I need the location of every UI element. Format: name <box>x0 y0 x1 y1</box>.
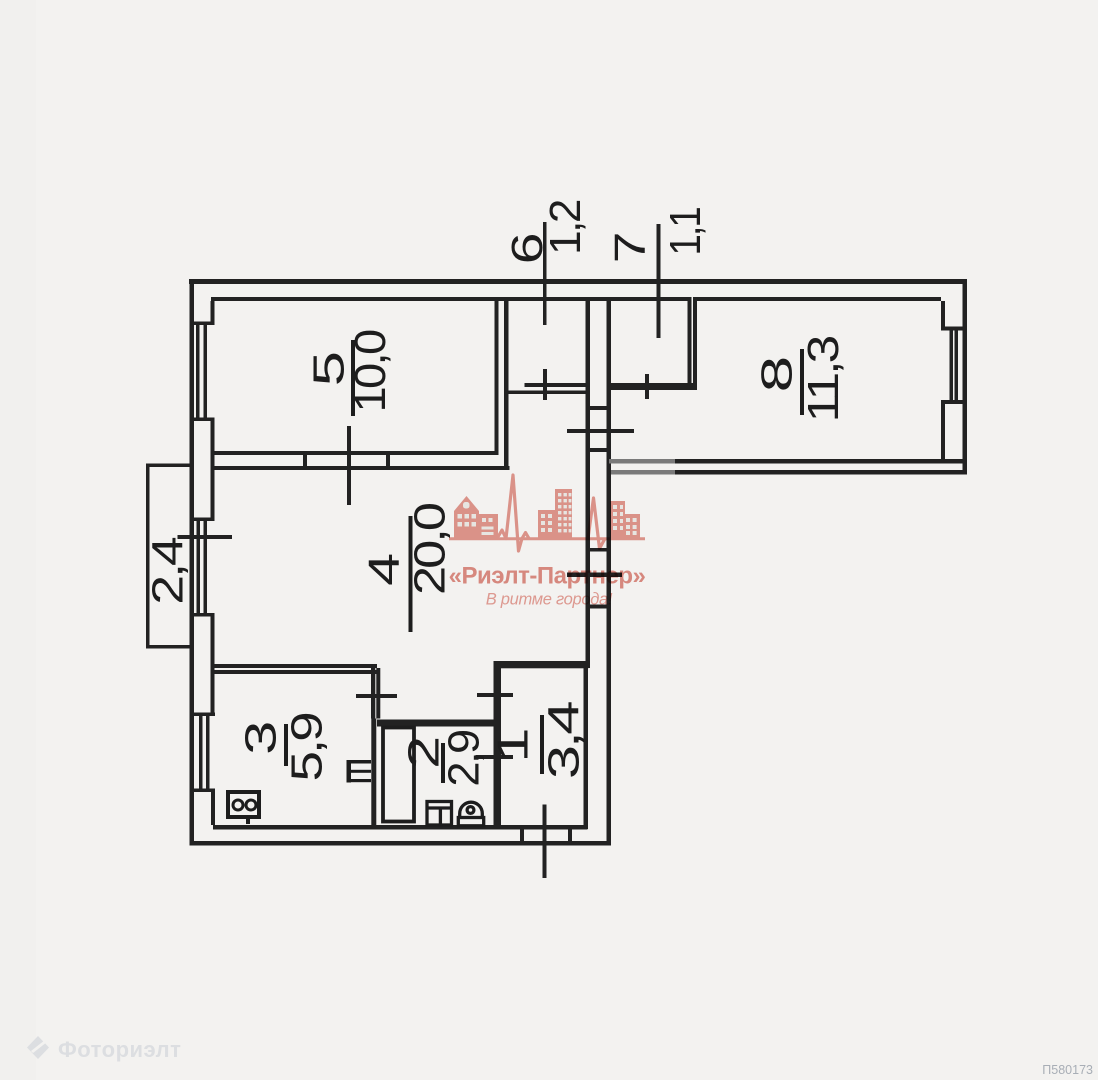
svg-text:1,2: 1,2 <box>541 200 590 255</box>
svg-text:4: 4 <box>360 554 409 586</box>
svg-text:П580173: П580173 <box>1042 1063 1093 1077</box>
svg-text:5,9: 5,9 <box>282 713 331 781</box>
svg-text:11,3: 11,3 <box>800 337 849 423</box>
svg-text:3: 3 <box>237 723 285 755</box>
svg-text:Фоториэлт: Фоториэлт <box>58 1037 181 1062</box>
svg-text:2,9: 2,9 <box>440 731 488 787</box>
svg-text:7: 7 <box>605 234 654 263</box>
svg-text:1,1: 1,1 <box>660 207 710 255</box>
svg-text:«Риэлт-Партнер»: «Риэлт-Партнер» <box>449 563 646 590</box>
svg-text:1: 1 <box>487 730 537 763</box>
svg-text:10,0: 10,0 <box>345 330 394 412</box>
svg-text:8: 8 <box>751 358 800 392</box>
svg-text:В ритме города!: В ритме города! <box>486 591 613 609</box>
svg-text:20,0: 20,0 <box>405 504 454 595</box>
svg-text:2,4: 2,4 <box>144 538 192 605</box>
svg-text:3,4: 3,4 <box>540 701 588 779</box>
